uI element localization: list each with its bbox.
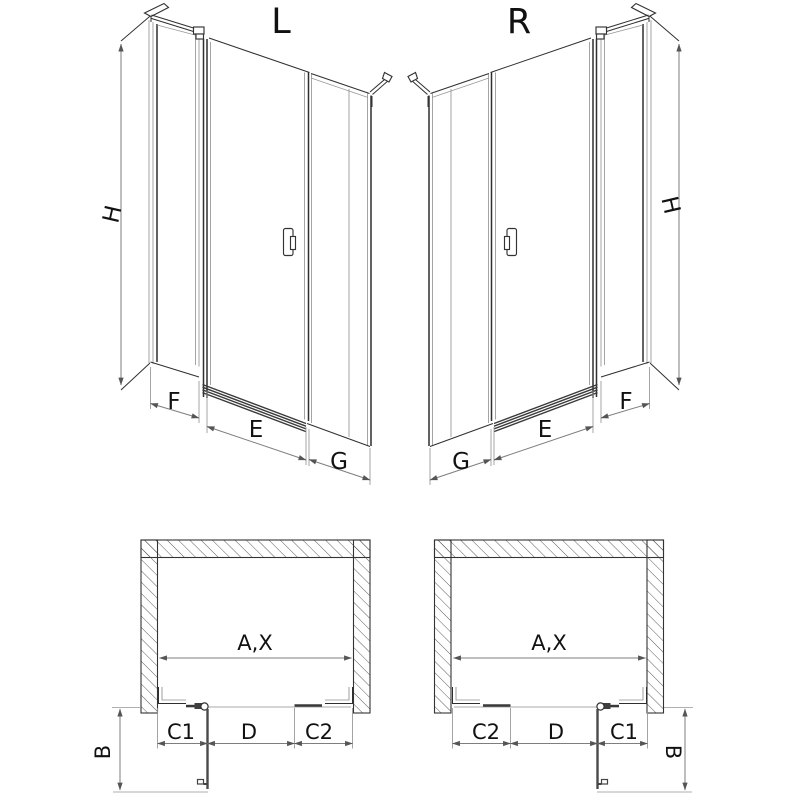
dim-label-d-right: D — [548, 720, 564, 744]
dim-label-c2-right: C2 — [472, 720, 500, 744]
dim-label-c1-left: C1 — [167, 720, 195, 744]
dim-label-e-right: E — [538, 417, 553, 443]
perspective-right-view — [408, 4, 679, 486]
dim-label-g-left: G — [330, 449, 348, 475]
dim-label-h-right: H — [655, 194, 684, 217]
view-title-right: R — [507, 2, 531, 42]
dim-label-c2-left: C2 — [305, 720, 333, 744]
technical-drawing-page: L H F E G R H F E G A,X C1 D C2 B A,X C2… — [0, 0, 800, 800]
dim-label-h-left: H — [98, 203, 127, 226]
dim-label-f-right: F — [619, 389, 632, 415]
dim-label-g-right: G — [452, 449, 470, 475]
dim-label-c1-right: C1 — [610, 720, 638, 744]
view-title-left: L — [271, 2, 291, 42]
plan-right-walls — [435, 540, 664, 713]
dim-label-b-left: B — [91, 745, 115, 759]
dim-label-ax-right: A,X — [531, 631, 566, 655]
shower-enclosure-diagram: L H F E G R H F E G A,X C1 D C2 B A,X C2… — [0, 0, 800, 800]
perspective-left-view — [121, 4, 392, 486]
plan-left-walls — [141, 540, 370, 713]
dim-label-e-left: E — [249, 417, 264, 443]
dim-label-ax-left: A,X — [237, 631, 272, 655]
dim-label-b-right: B — [661, 745, 685, 759]
dim-label-f-left: F — [167, 389, 180, 415]
dim-label-d-left: D — [241, 720, 257, 744]
